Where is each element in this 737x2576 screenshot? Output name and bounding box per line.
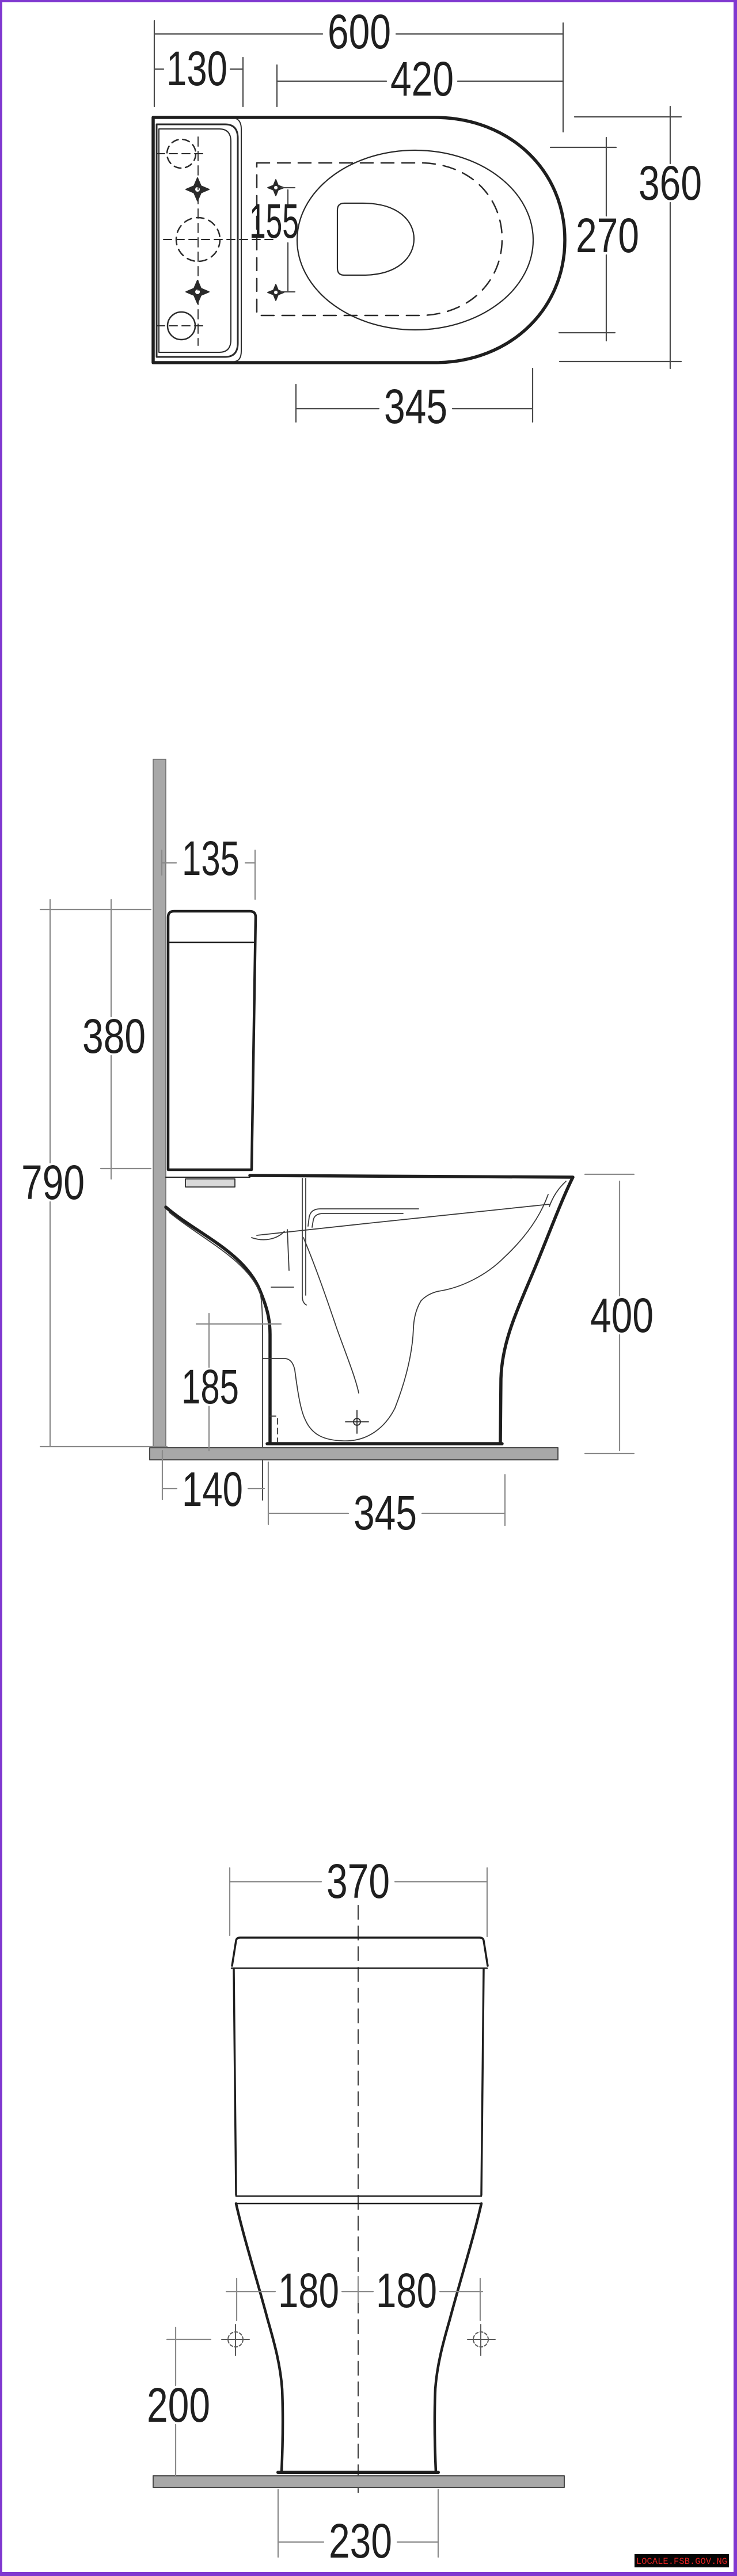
svg-text:360: 360 [639,156,702,210]
svg-text:345: 345 [354,1486,417,1540]
svg-text:790: 790 [21,1155,85,1209]
svg-text:600: 600 [328,5,391,59]
svg-text:180: 180 [376,2263,437,2318]
svg-text:155: 155 [249,194,299,248]
svg-text:130: 130 [166,41,227,96]
svg-text:LOCALE.FSB.GOV.NG: LOCALE.FSB.GOV.NG [636,2556,727,2567]
svg-text:270: 270 [576,208,639,262]
svg-text:200: 200 [147,2378,210,2432]
svg-text:185: 185 [181,1360,239,1414]
svg-text:345: 345 [384,379,447,433]
svg-text:420: 420 [390,52,454,106]
svg-text:135: 135 [182,831,240,885]
svg-text:380: 380 [82,1009,146,1063]
svg-text:230: 230 [329,2514,392,2568]
svg-text:400: 400 [590,1288,654,1342]
svg-text:180: 180 [278,2263,339,2318]
svg-text:140: 140 [182,1462,243,1516]
svg-text:370: 370 [326,1854,390,1908]
